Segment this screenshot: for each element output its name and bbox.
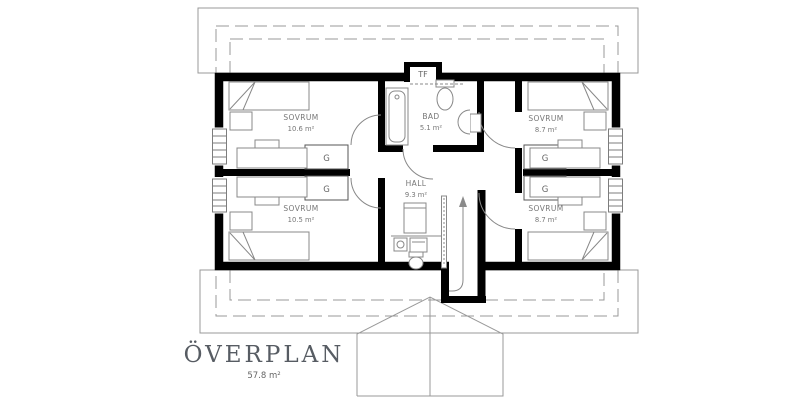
bed-bottom-left xyxy=(229,232,309,260)
wall-right-mid xyxy=(515,148,522,193)
chair-top-left xyxy=(255,140,279,148)
wall-stair-shaft-bottom xyxy=(441,296,486,303)
hall-wc-bowl xyxy=(409,257,423,269)
hall-wc-tank xyxy=(409,252,423,257)
area-sovrum-bottom-right: 8.7 m² xyxy=(535,216,558,224)
wall-right-stub-top xyxy=(515,81,522,112)
dryer xyxy=(410,238,427,252)
label-bad: BAD xyxy=(422,112,439,121)
area-sovrum-bottom-left: 10.5 m² xyxy=(288,216,315,224)
window-left-bottom xyxy=(213,179,227,212)
label-sovrum-top-right: SOVRUM xyxy=(528,114,563,123)
wall-tf-top xyxy=(404,62,442,67)
chair-bottom-left xyxy=(255,197,279,205)
plan-title: ÖVERPLAN xyxy=(184,341,345,368)
roof-rect-bottom xyxy=(200,270,638,333)
desk-bottom-left xyxy=(237,177,307,197)
window-right-top xyxy=(609,129,623,164)
area-sovrum-top-right: 8.7 m² xyxy=(535,126,558,134)
label-g-left-top: G xyxy=(323,154,330,164)
label-g-right-bottom: G xyxy=(542,185,549,195)
bed-bottom-right xyxy=(528,232,608,260)
wall-hall-left-lower xyxy=(378,178,385,262)
washer xyxy=(394,238,407,251)
wall-middle-left xyxy=(215,169,350,176)
label-hall: HALL xyxy=(406,179,427,188)
nightstand-top-right xyxy=(584,112,606,130)
plan-title-area: 57.8 m² xyxy=(247,371,280,381)
floor-plan: SOVRUM 10.6 m² SOVRUM 10.5 m² BAD 5.1 m²… xyxy=(0,0,800,402)
wall-bath-left xyxy=(378,81,385,145)
label-sovrum-top-left: SOVRUM xyxy=(283,113,318,122)
area-bad: 5.1 m² xyxy=(420,124,443,132)
window-right-bottom xyxy=(609,179,623,212)
nightstand-top-left xyxy=(230,112,252,130)
label-sovrum-bottom-right: SOVRUM xyxy=(528,204,563,213)
label-g-left-bottom: G xyxy=(323,185,330,195)
bed-top-right xyxy=(528,82,608,110)
wall-middle-right xyxy=(523,169,620,176)
window-left-top xyxy=(213,129,227,164)
desk-bottom-right xyxy=(530,177,600,197)
toilet-bowl xyxy=(437,88,453,110)
nightstand-bottom-left xyxy=(230,212,252,230)
chair-top-right xyxy=(558,140,582,148)
label-tf: TF xyxy=(417,70,428,79)
area-sovrum-top-left: 10.6 m² xyxy=(288,125,315,133)
wall-right-lower xyxy=(515,229,522,262)
area-hall: 9.3 m² xyxy=(405,191,428,199)
label-sovrum-bottom-left: SOVRUM xyxy=(283,204,318,213)
desk-top-right xyxy=(530,148,600,168)
bed-top-left xyxy=(229,82,309,110)
wall-bath-bottom-a xyxy=(378,145,403,152)
wall-bath-bottom-b xyxy=(433,145,484,152)
sink-cabinet xyxy=(470,114,481,132)
nightstand-bottom-right xyxy=(584,212,606,230)
label-g-right-top: G xyxy=(542,154,549,164)
desk-top-left xyxy=(237,148,307,168)
